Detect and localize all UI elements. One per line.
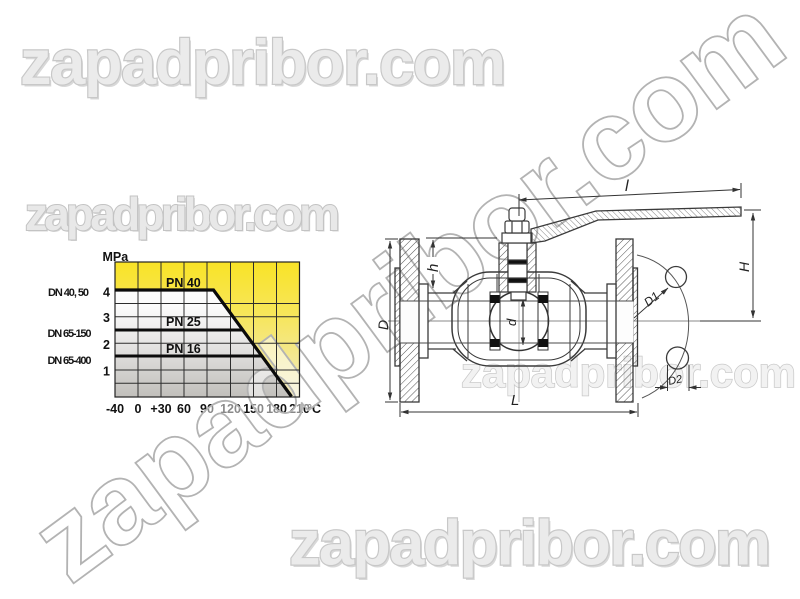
svg-text:d: d (504, 318, 519, 326)
svg-text:3: 3 (103, 311, 110, 325)
svg-text:MPa: MPa (103, 250, 130, 264)
svg-text:-40: -40 (106, 402, 124, 416)
svg-text:2: 2 (103, 338, 110, 352)
svg-text:1: 1 (103, 365, 110, 379)
svg-text:PN 16: PN 16 (166, 342, 201, 356)
svg-text:4: 4 (103, 286, 110, 300)
svg-text:h: h (425, 264, 442, 272)
svg-text:D: D (375, 320, 391, 330)
svg-text:PN 25: PN 25 (166, 315, 201, 329)
svg-text:zapadpribor.com: zapadpribor.com (25, 188, 340, 240)
svg-text:DN 40, 50: DN 40, 50 (48, 287, 89, 299)
svg-text:H: H (736, 261, 752, 272)
svg-text:DN 65-400: DN 65-400 (48, 355, 92, 367)
svg-text:D1: D1 (641, 289, 662, 309)
svg-text:l: l (625, 178, 629, 195)
svg-text:PN 40: PN 40 (166, 276, 201, 290)
svg-text:zapadpribor.com: zapadpribor.com (20, 28, 506, 98)
svg-text:L: L (511, 392, 519, 409)
svg-text:DN 65-150: DN 65-150 (48, 328, 92, 340)
svg-text:zapadpribor.com: zapadpribor.com (289, 509, 771, 579)
